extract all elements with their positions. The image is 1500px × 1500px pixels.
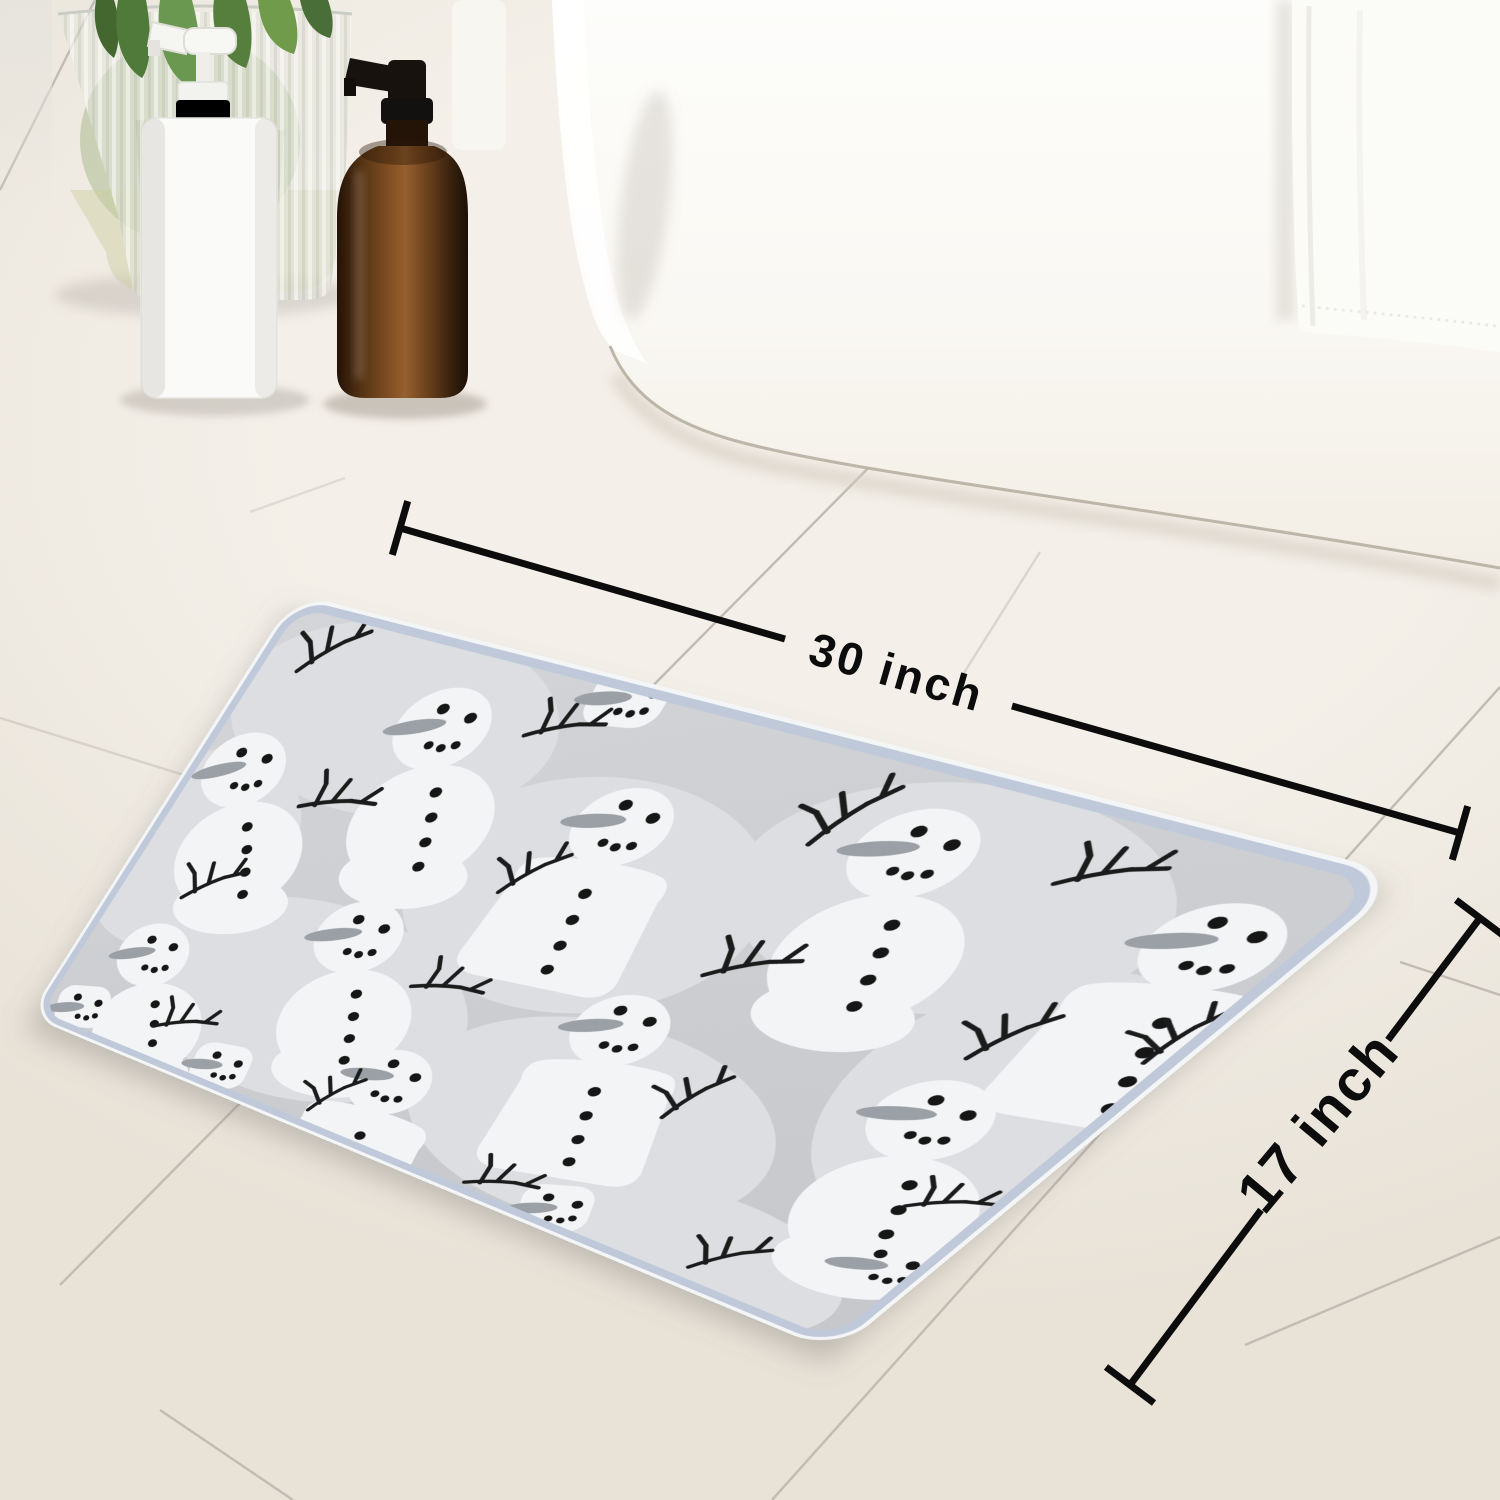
white-bottle-body [141, 118, 277, 398]
bathtub-base-edge [610, 346, 1500, 568]
vase-rim [58, 6, 352, 14]
bathtub-floor-shadow [616, 374, 1500, 584]
snowman-pattern [37, 603, 1387, 1343]
bathroom-product-scene: 30 inch 17 inch [0, 0, 1500, 1500]
towel-stitch [1302, 306, 1496, 326]
glass-vase [55, 0, 355, 317]
tick-end [1452, 806, 1467, 860]
white-pump-spout [148, 22, 188, 54]
towel-body [1292, 0, 1500, 352]
white-bottle-shadow [120, 384, 310, 416]
towel-shadow [1276, 0, 1294, 320]
leaves-through-glass [80, 35, 300, 245]
amber-bottle-highlight [354, 170, 364, 380]
bathtub-body [552, 0, 1500, 568]
amber-pump-bottle [323, 58, 487, 419]
tick-end [1106, 1367, 1154, 1403]
vase-water [70, 190, 340, 292]
tile-grout-line [1400, 962, 1500, 995]
white-pump-cap [184, 28, 236, 54]
towel-fold [1359, 10, 1364, 320]
white-panel-edge [452, 0, 506, 150]
plant-leaves [95, 0, 333, 88]
snowman-bath-mat [33, 598, 1401, 1348]
amber-pump-head [388, 60, 426, 104]
wall-edge [0, 0, 52, 210]
amber-pump-collar [381, 98, 433, 124]
amber-bottle-neck [386, 120, 428, 150]
tick-start [1456, 900, 1500, 936]
white-bottle-shade-right [255, 118, 277, 398]
bathtub-highlight [552, 0, 648, 364]
white-bottle-shade-left [141, 118, 165, 398]
vase-ribs [58, 12, 352, 300]
amber-pump-spout [344, 58, 392, 92]
amber-pump-nozzle [344, 78, 356, 96]
amber-bottle-shoulder [359, 139, 447, 165]
tile-grout-line [160, 1410, 293, 1500]
white-pump-stem [196, 52, 210, 84]
tile-grout-line [0, 718, 200, 780]
amber-bottle-body [337, 146, 468, 398]
bath-towel [1276, 0, 1500, 352]
white-pump-neck [178, 82, 228, 102]
towel-seam [1309, 6, 1313, 326]
vase-shadow [55, 273, 355, 317]
white-pump-nozzle [148, 40, 160, 56]
tile-vein-line [962, 552, 1040, 676]
tile-grout-line [250, 478, 345, 512]
tile-grout-line [1245, 1237, 1500, 1345]
width-dimension-label: 30 inch [803, 621, 990, 722]
bathtub [452, 0, 1500, 584]
tick-start [392, 501, 407, 555]
bathtub-shadow-streak [607, 88, 683, 322]
vase-glass-body [58, 12, 352, 300]
white-pump-collar [176, 100, 230, 122]
plant-stems [140, 110, 280, 280]
tile-grout-line [0, 0, 95, 190]
white-pump-bottle [120, 22, 310, 416]
amber-bottle-shadow [323, 389, 487, 419]
height-dimension-label: 17 inch [1224, 1019, 1413, 1226]
